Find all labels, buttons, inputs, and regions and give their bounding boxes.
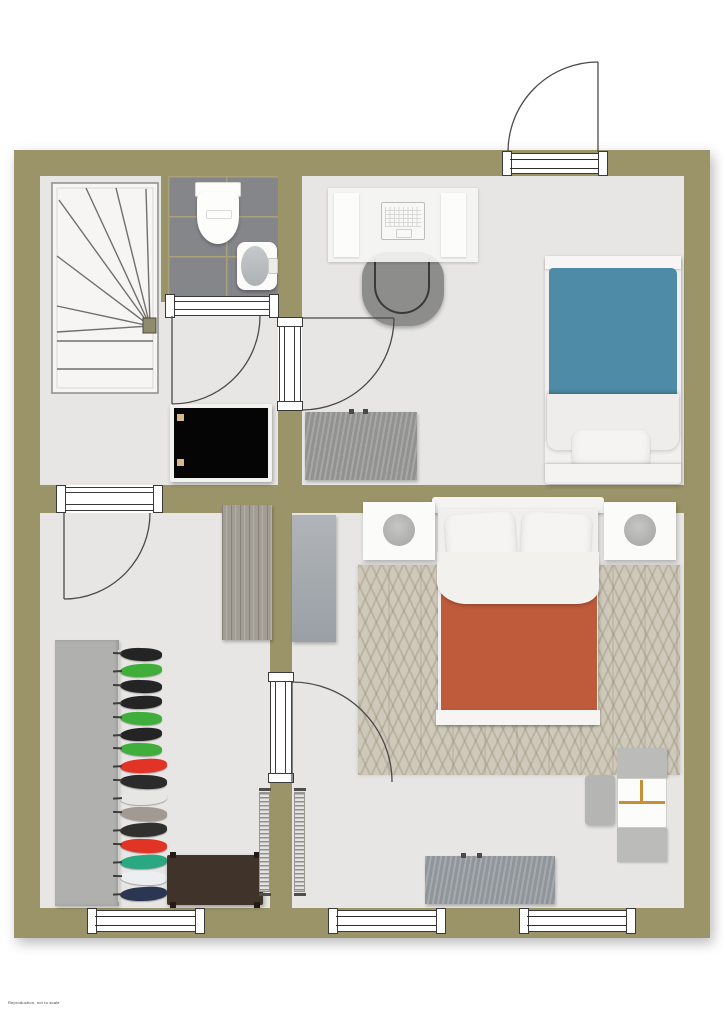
garment [120, 743, 162, 757]
radiator-bedroom [294, 792, 305, 892]
nightstand-lamp [624, 514, 656, 546]
bench-knob [477, 853, 482, 858]
shoe-bench [167, 855, 263, 905]
shelf-open-compartments [617, 778, 667, 828]
toilet [195, 182, 241, 246]
fine-print: Reproduction, not to scale [8, 1000, 60, 1005]
wall-left [14, 150, 40, 938]
hall-open-wardrobe [55, 640, 119, 906]
double-bed-footboard [436, 710, 600, 725]
nightstand-left [363, 502, 435, 560]
entrance-threshold-lines [510, 159, 600, 169]
garment [120, 758, 168, 774]
laptop-trackpad [396, 229, 412, 238]
wall-mid-horizontal-stub [40, 485, 57, 513]
wall-right [684, 150, 710, 938]
wall-hall-bedroom-lower [270, 782, 292, 908]
tv-foot-bottom [177, 459, 184, 466]
dresser-knob [363, 409, 368, 414]
hall-cabinet-wood [222, 505, 272, 640]
bedroom-wardrobe [292, 515, 336, 642]
window-glass [336, 916, 438, 926]
bench-foot [170, 852, 176, 858]
laptop [381, 202, 425, 240]
laptop-keyboard [385, 207, 421, 227]
sink [237, 242, 277, 290]
garment [120, 679, 162, 693]
toilet-seat-seam [206, 210, 232, 219]
bedroom-bench [425, 856, 555, 904]
sink-basin [241, 246, 269, 286]
shelf-divider-vertical [640, 780, 643, 802]
window-glass [527, 916, 628, 926]
study-door-frame [279, 318, 301, 410]
bench-foot [254, 902, 260, 908]
wall-landing-study-lower [278, 410, 302, 485]
shelf-unit [617, 748, 667, 862]
bedroom-door-frame [270, 673, 292, 782]
hallway-door-frame [57, 487, 162, 511]
double-bed [432, 497, 604, 727]
double-bed-sheet-fold [437, 552, 599, 604]
wall-bathroom-left [161, 176, 168, 302]
tv-screen [174, 408, 268, 478]
bench-knob [461, 853, 466, 858]
garment [120, 838, 167, 854]
bedroom-stool [585, 775, 615, 825]
window-bedroom-right [520, 910, 635, 932]
garment [120, 790, 168, 806]
window-glass [95, 916, 197, 926]
garment [120, 663, 163, 678]
nightstand-lamp [383, 514, 415, 546]
single-bed [545, 256, 681, 484]
dresser-knob [349, 409, 354, 414]
bathroom-door-frame [166, 296, 278, 316]
tv-foot-top [177, 414, 184, 421]
desk-leg-left [334, 193, 359, 257]
desk-leg-right [441, 193, 466, 257]
study-dresser [305, 412, 417, 480]
window-bedroom-left [329, 910, 445, 932]
wall-landing-study-upper [278, 176, 302, 318]
wall-hall-bedroom-upper [270, 513, 292, 673]
single-bed-footboard [545, 464, 681, 482]
garment [120, 774, 167, 790]
sink-faucet [268, 258, 278, 274]
desk [328, 188, 478, 262]
entrance-door-frame [503, 153, 607, 174]
garment [120, 806, 167, 822]
shelf-top-panel [617, 748, 667, 778]
office-chair [362, 252, 444, 326]
garment [120, 647, 162, 661]
garment [120, 870, 167, 886]
double-bed-duvet-terracotta [441, 588, 597, 718]
garment [120, 695, 163, 710]
floor-plan-page: Reproduction, not to scale [0, 0, 724, 1024]
bench-foot [170, 902, 176, 908]
single-bed-duvet-teal [549, 268, 677, 396]
garment [120, 711, 162, 725]
radiator-hallway [259, 792, 270, 892]
tv [170, 404, 272, 482]
nightstand-right [604, 502, 676, 560]
garment [120, 726, 163, 741]
garment [120, 853, 168, 869]
clothes-rail-items [114, 648, 170, 906]
entrance-door-swing [508, 62, 598, 152]
garment [120, 885, 168, 901]
shelf-bottom-panel [617, 828, 667, 862]
office-chair-backrest [374, 258, 430, 314]
garment [120, 822, 168, 838]
window-hallway [88, 910, 204, 932]
